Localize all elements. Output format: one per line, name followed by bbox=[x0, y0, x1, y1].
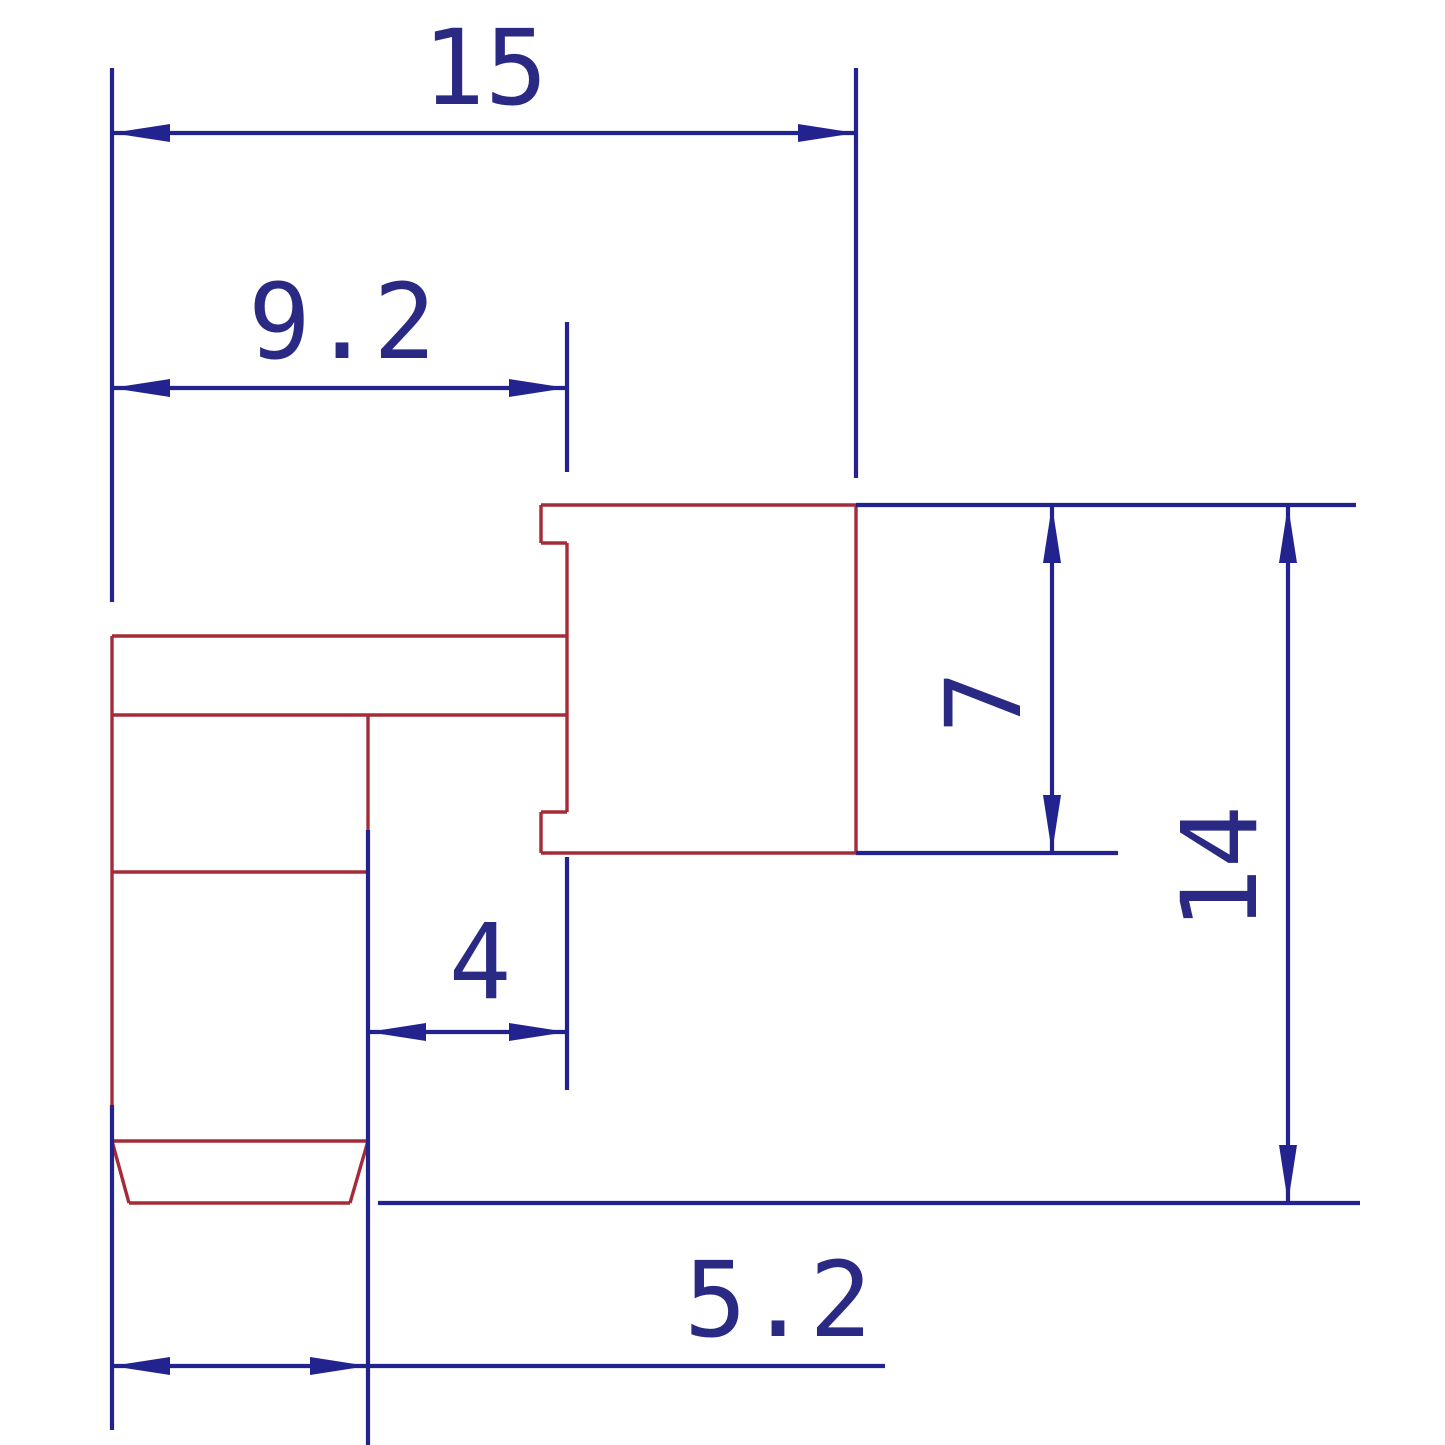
arrowhead-right-icon bbox=[310, 1357, 368, 1375]
arrowhead-down-icon bbox=[1043, 795, 1061, 853]
arrowhead-down-icon bbox=[1279, 1145, 1297, 1203]
cad-drawing-page: 15 9.2 4 5.2 7 bbox=[0, 0, 1445, 1445]
arrowhead-right-icon bbox=[509, 379, 567, 397]
dimension-4-label: 4 bbox=[449, 901, 512, 1023]
arrowhead-right-icon bbox=[509, 1023, 567, 1041]
dimension-15: 15 bbox=[112, 7, 856, 142]
arrowhead-left-icon bbox=[368, 1023, 426, 1041]
cad-drawing-canvas: 15 9.2 4 5.2 7 bbox=[0, 0, 1445, 1445]
dimension-15-label: 15 bbox=[422, 7, 547, 129]
arrowhead-left-icon bbox=[112, 124, 170, 142]
arrowhead-up-icon bbox=[1043, 505, 1061, 563]
dimension-14-label: 14 bbox=[1159, 805, 1281, 930]
arrowhead-left-icon bbox=[112, 379, 170, 397]
dimension-5-2-label: 5.2 bbox=[684, 1239, 872, 1361]
dimension-7-label: 7 bbox=[923, 671, 1045, 734]
arrowhead-right-icon bbox=[798, 124, 856, 142]
dimension-14: 14 bbox=[1159, 505, 1297, 1203]
dimension-9-2-label: 9.2 bbox=[248, 261, 436, 383]
dimension-5-2: 5.2 bbox=[112, 1239, 872, 1375]
arrowhead-left-icon bbox=[112, 1357, 170, 1375]
trapezoid-right-slant bbox=[350, 1141, 368, 1203]
arrowhead-up-icon bbox=[1279, 505, 1297, 563]
dimension-7: 7 bbox=[923, 505, 1061, 853]
part-outline-right-body bbox=[541, 505, 856, 853]
dimension-9-2: 9.2 bbox=[112, 261, 567, 397]
dimension-4: 4 bbox=[368, 901, 567, 1041]
trapezoid-left-slant bbox=[112, 1141, 129, 1203]
